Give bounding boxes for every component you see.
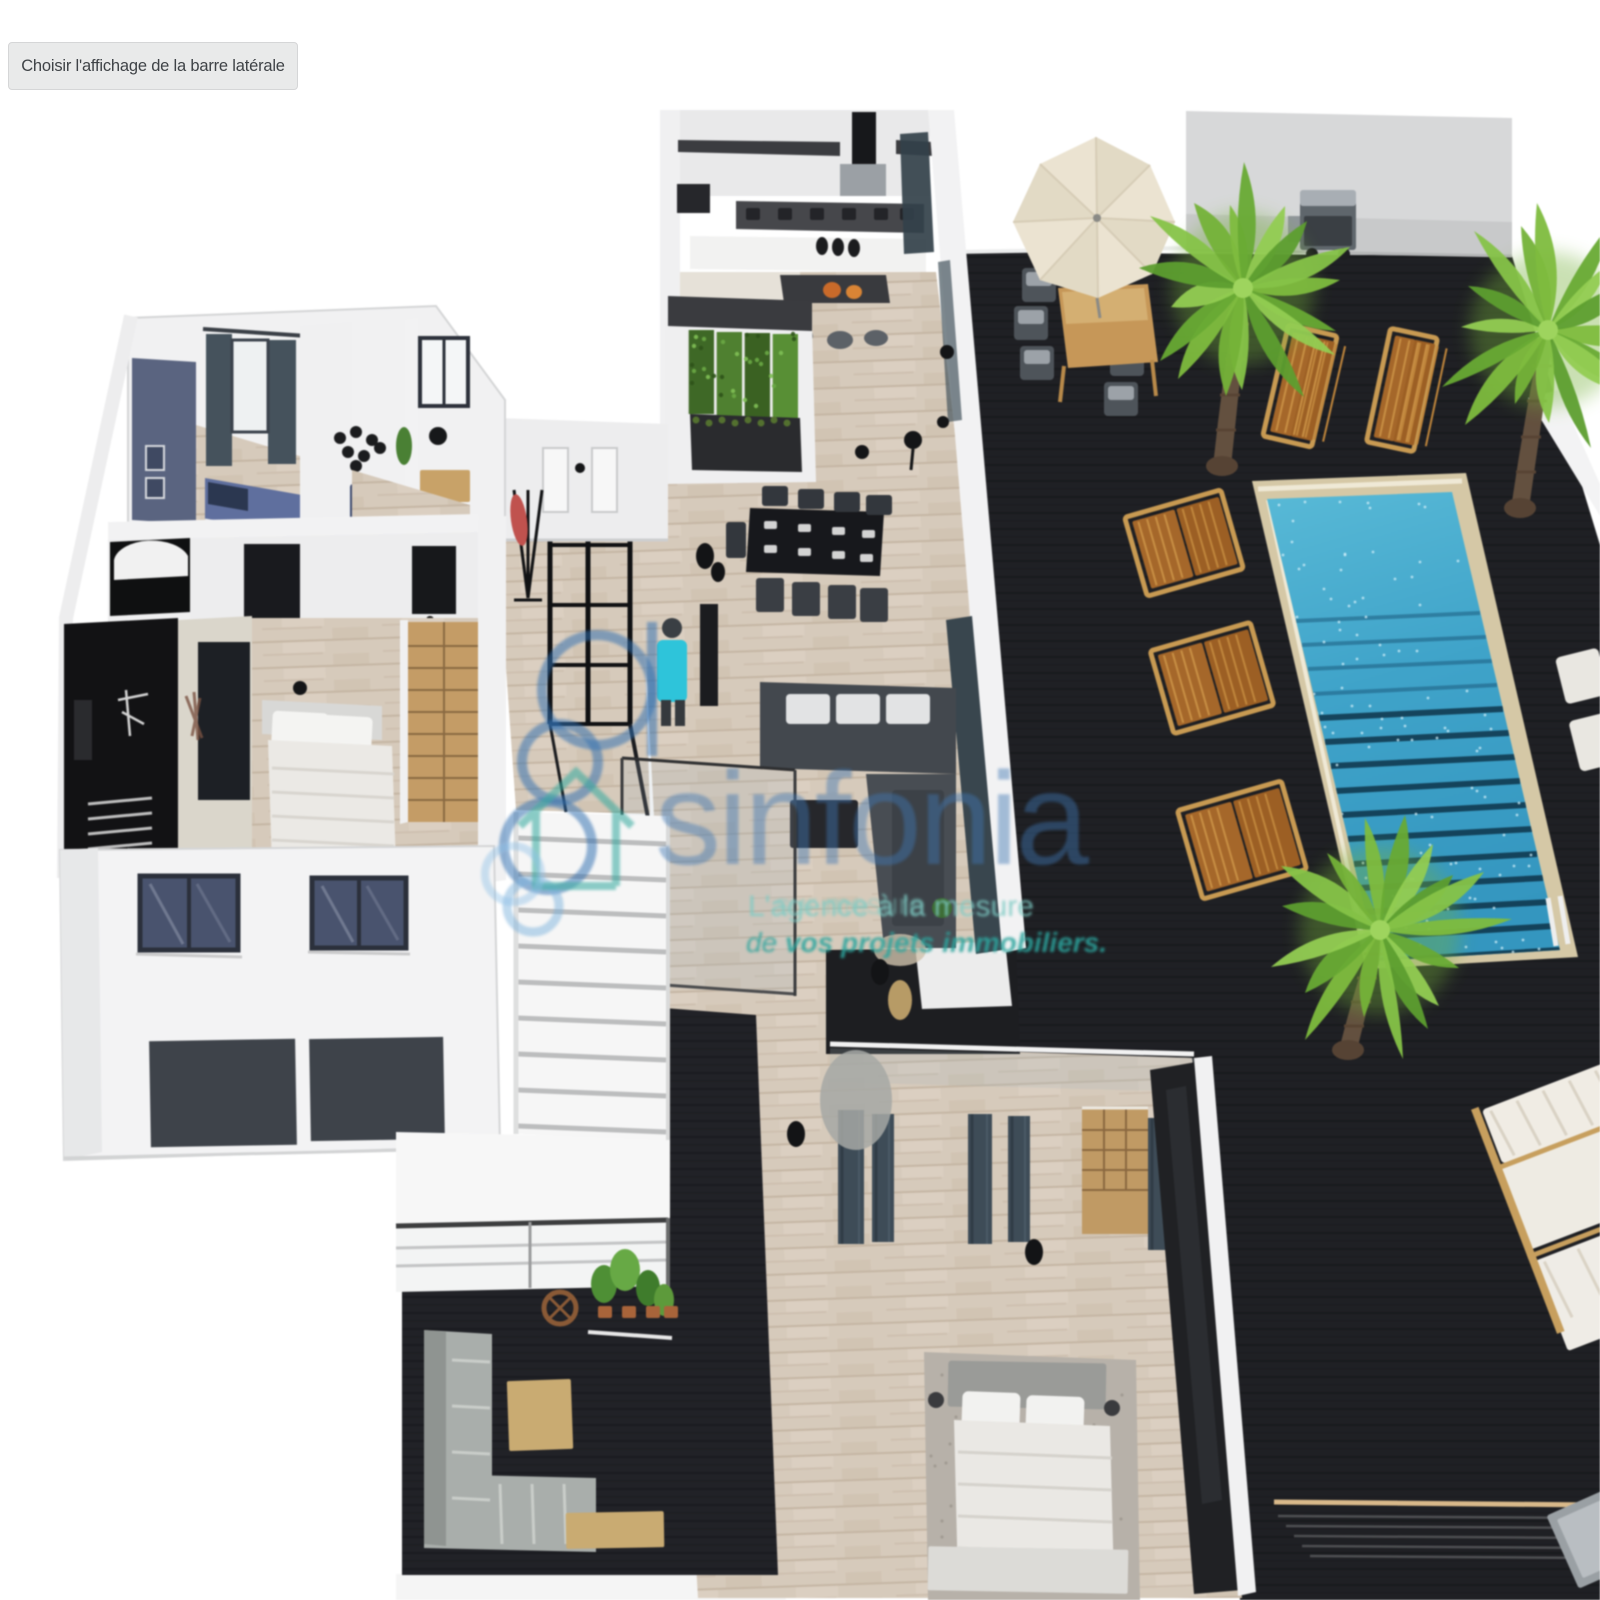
svg-text:de vos projets immobiliers.: de vos projets immobiliers. xyxy=(746,927,1107,958)
svg-text:sinfonia: sinfonia xyxy=(655,745,1090,892)
svg-text:sur mesure: sur mesure xyxy=(775,888,925,921)
